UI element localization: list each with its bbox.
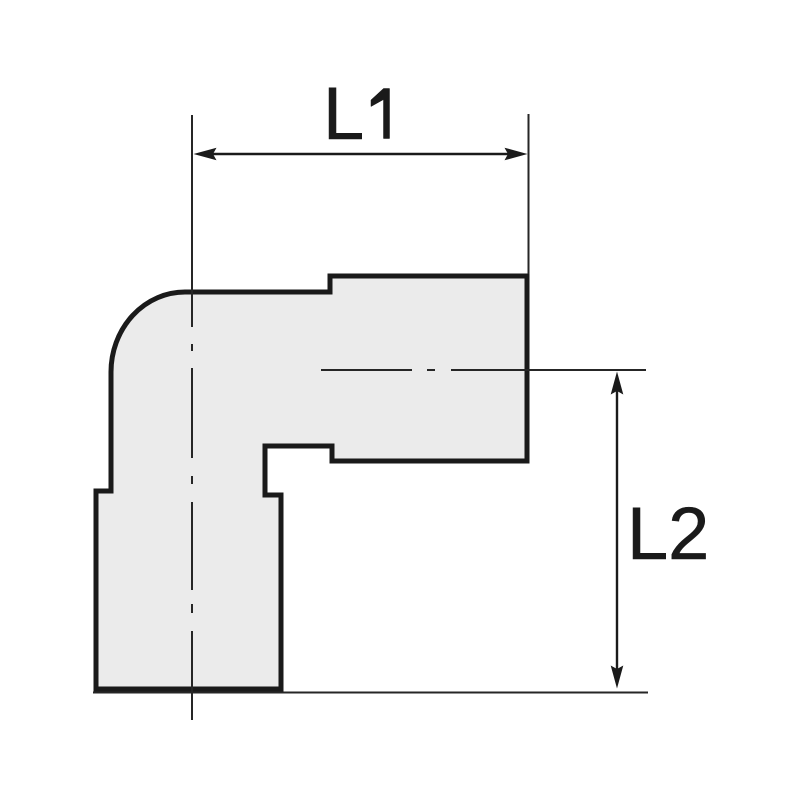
svg-text:L2: L2 — [627, 492, 709, 575]
svg-text:L: L — [323, 72, 364, 155]
